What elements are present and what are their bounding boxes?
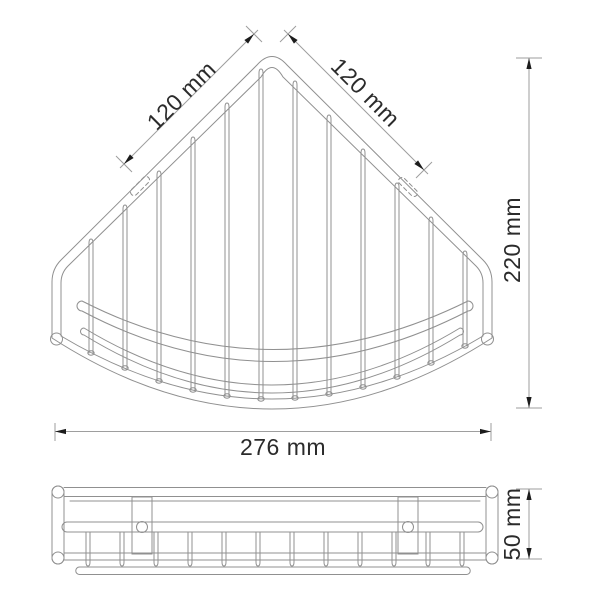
dim-label-left-edge: 120 mm: [142, 56, 221, 135]
dim-label-right-edge: 120 mm: [326, 53, 405, 132]
bracket-screw-right: [403, 522, 414, 533]
dim-arrow: [526, 548, 531, 559]
wire: [429, 217, 433, 363]
wire: [324, 532, 328, 566]
bracket-screw-left: [137, 522, 148, 533]
post-tube-end: [52, 486, 64, 498]
dim-line-right-edge: [284, 30, 428, 174]
post-tube-end: [52, 552, 64, 564]
wall-bracket-right: [398, 497, 418, 554]
mount-slot-left: [129, 175, 151, 197]
bottom-rail: [64, 553, 486, 560]
grid-wires-side: [86, 532, 464, 566]
wire: [426, 532, 430, 566]
top-view: [51, 57, 494, 410]
post-tube-end: [486, 552, 498, 564]
dim-arrow: [526, 58, 531, 69]
technical-drawing: 120 mm 120 mm 220 mm 276 mm 50 mm: [0, 0, 600, 600]
wall-bracket-left: [132, 497, 152, 554]
wire: [154, 532, 158, 566]
drawing-canvas: 120 mm 120 mm 220 mm 276 mm 50 mm: [0, 0, 600, 600]
dim-label-width: 276 mm: [240, 434, 326, 460]
wire: [188, 532, 192, 566]
dim-arrow: [526, 397, 531, 408]
middle-rail: [62, 522, 483, 532]
wire: [222, 532, 226, 566]
wire: [293, 81, 297, 398]
dim-arrow: [526, 489, 531, 500]
post-tube-end: [486, 486, 498, 498]
wire: [395, 183, 399, 377]
wire: [86, 532, 90, 566]
wire: [327, 115, 331, 394]
rim-outer: [52, 57, 492, 410]
dim-arrow: [480, 429, 491, 434]
wire: [123, 205, 127, 368]
dim-label-height-front: 50 mm: [499, 488, 525, 561]
wire: [460, 532, 464, 566]
bottom-bar: [76, 567, 471, 575]
dim-arrow: [55, 429, 66, 434]
wire: [225, 103, 229, 396]
wire: [256, 532, 260, 566]
front-view: [52, 486, 498, 575]
wire: [358, 532, 362, 566]
dim-label-depth: 220 mm: [499, 197, 525, 283]
mount-slot-right: [397, 176, 419, 198]
wire: [120, 532, 124, 566]
wire: [290, 532, 294, 566]
wire: [89, 239, 93, 353]
wire: [157, 171, 161, 381]
rim-tube-end-left: [51, 333, 63, 345]
top-rail: [64, 488, 486, 502]
wire: [392, 532, 396, 566]
rim-tube-end-right: [482, 333, 494, 345]
